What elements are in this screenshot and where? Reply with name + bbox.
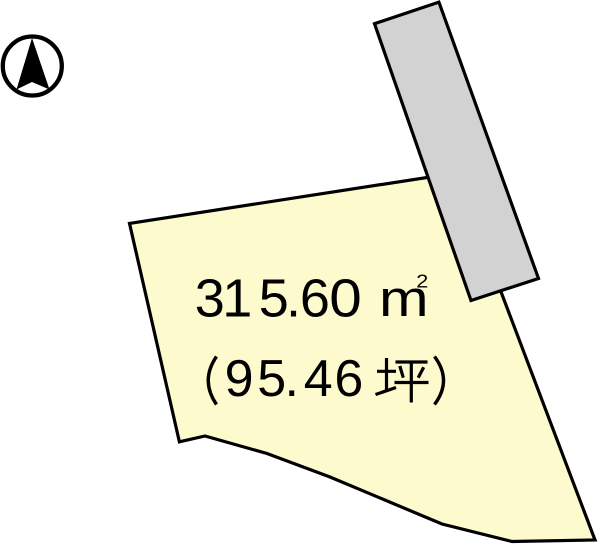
svg-text:.: . xyxy=(285,350,299,408)
svg-text:3: 3 xyxy=(195,269,225,329)
svg-text:4: 4 xyxy=(304,350,333,408)
svg-text:9: 9 xyxy=(225,350,254,408)
svg-text:2: 2 xyxy=(416,272,428,292)
svg-text:0: 0 xyxy=(329,268,362,328)
svg-text:.: . xyxy=(286,269,301,329)
svg-text:6: 6 xyxy=(334,350,363,408)
svg-text:5: 5 xyxy=(259,269,289,329)
svg-text:1: 1 xyxy=(222,269,252,329)
svg-text:5: 5 xyxy=(257,350,286,408)
svg-text:6: 6 xyxy=(300,269,330,329)
